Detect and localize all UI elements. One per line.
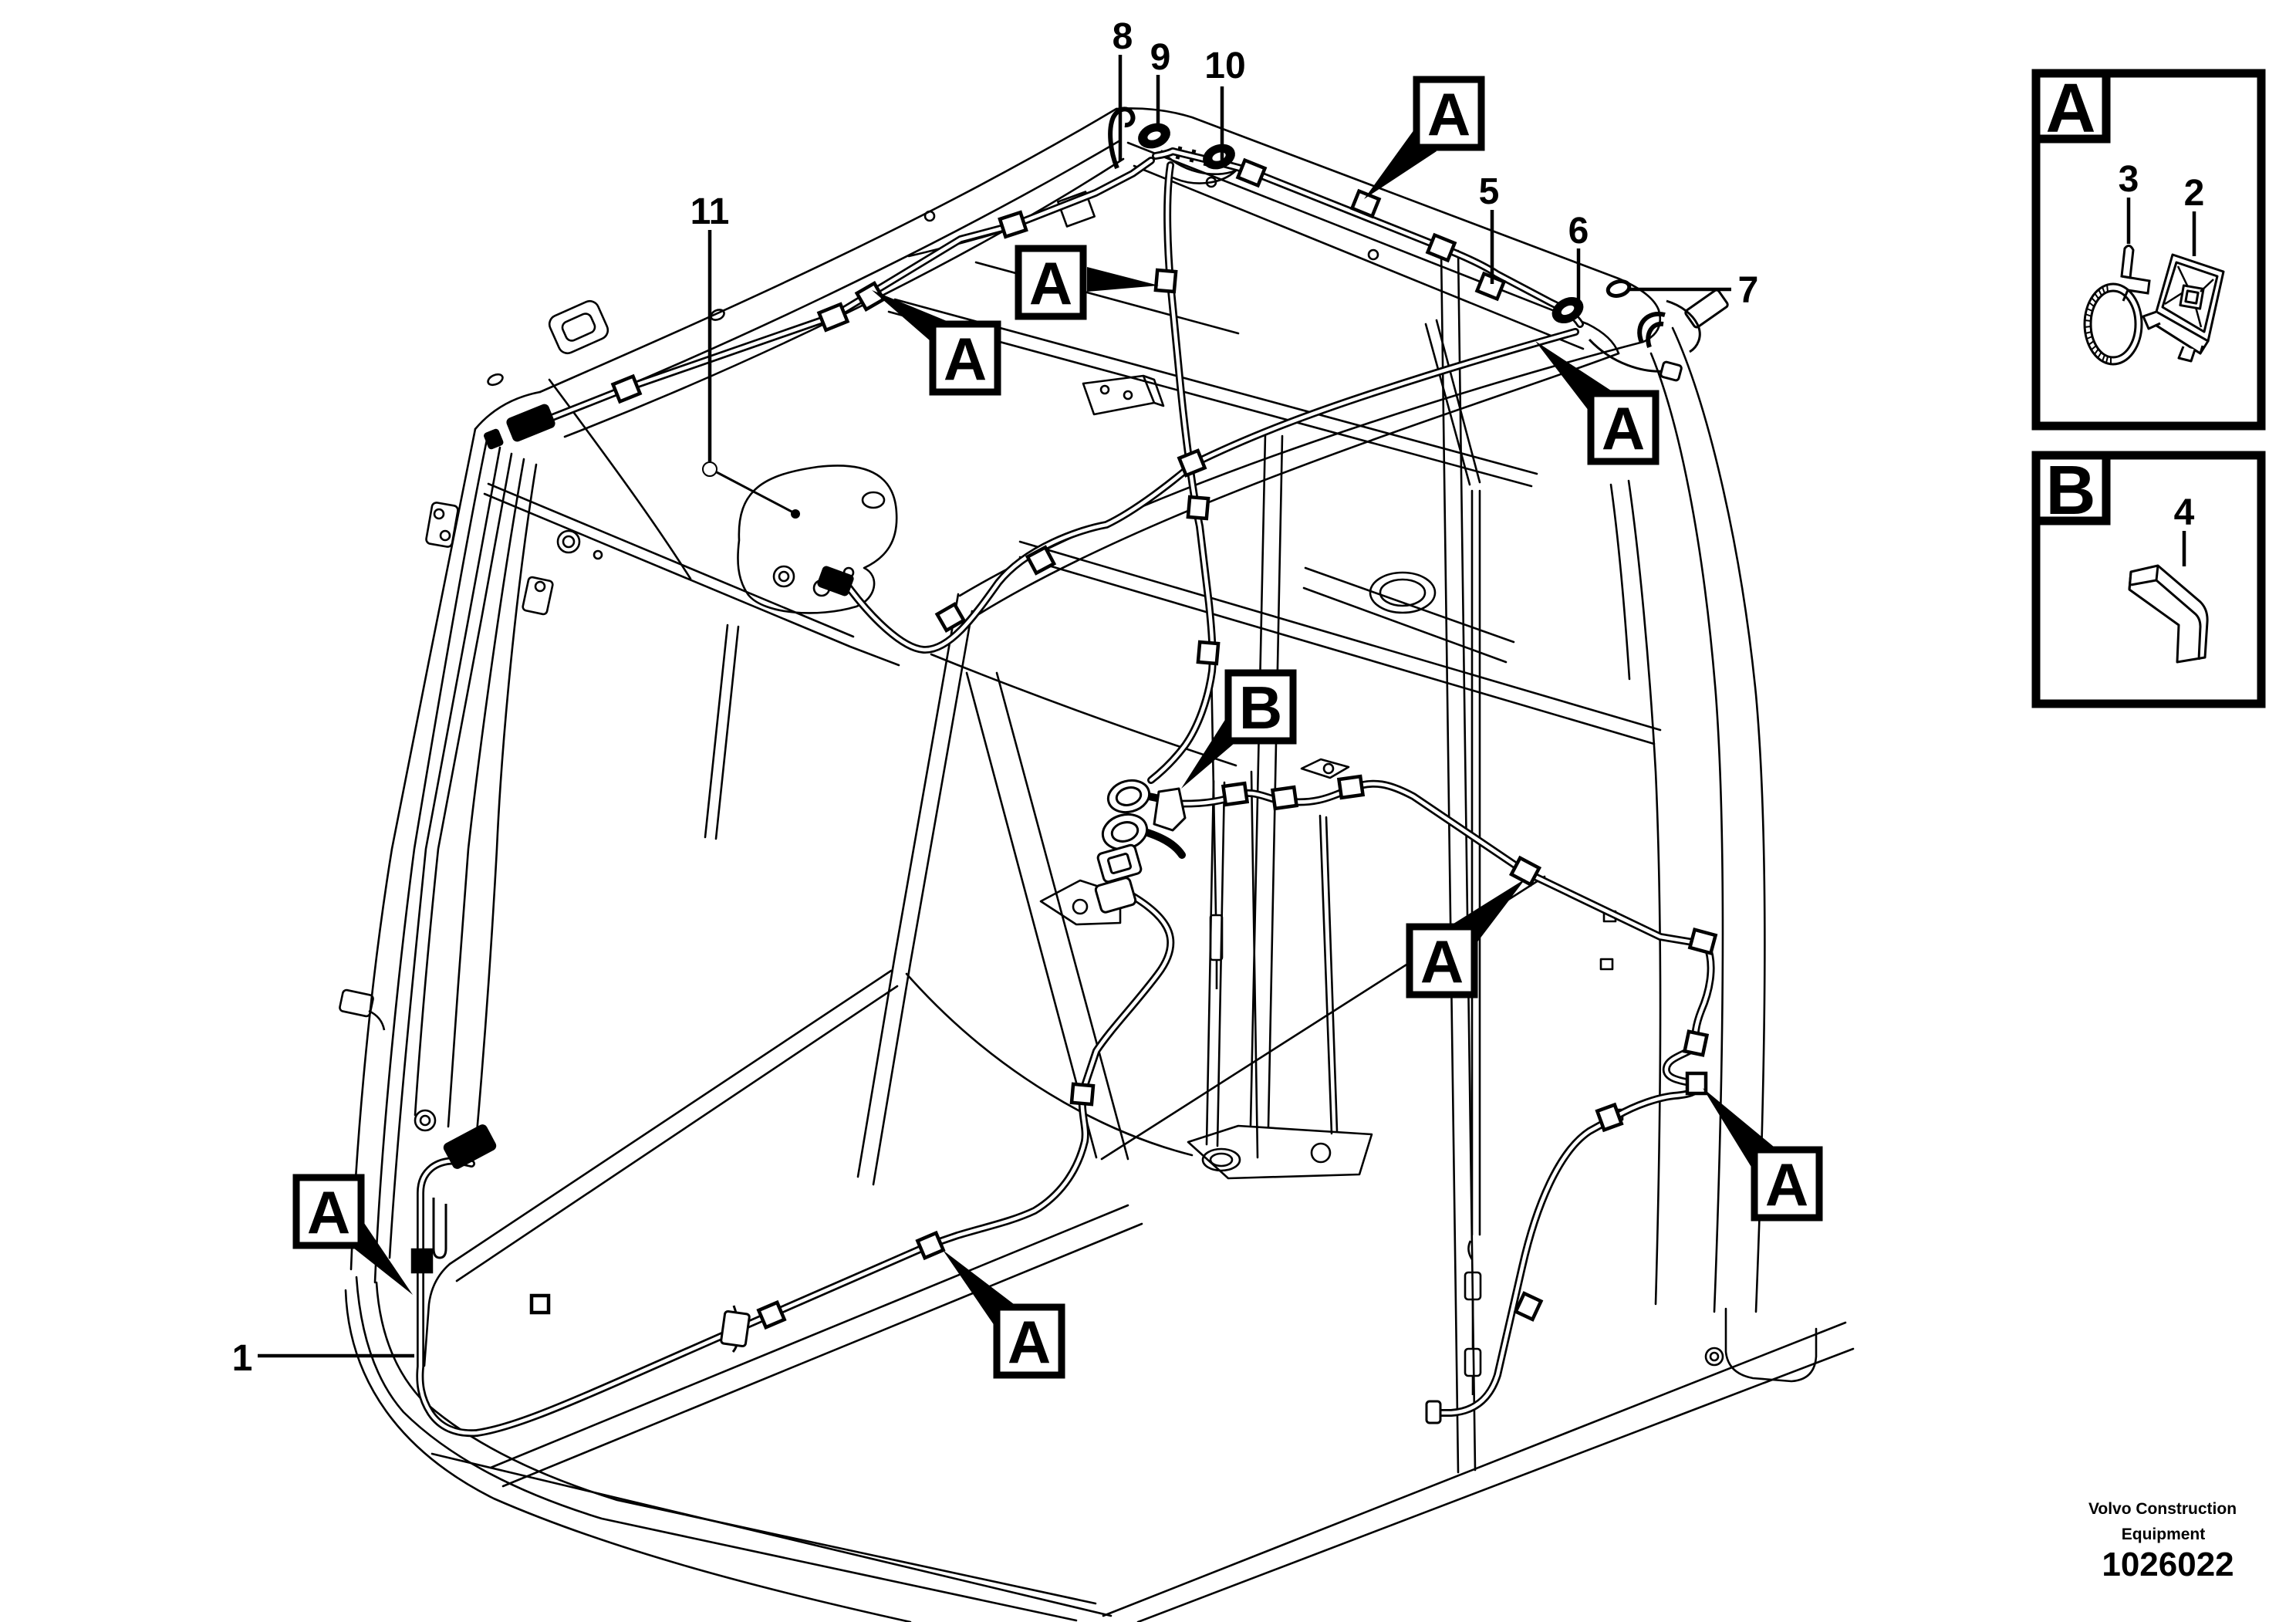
svg-text:1026022: 1026022 — [2102, 1546, 2234, 1583]
svg-text:A: A — [2046, 70, 2096, 147]
svg-text:11: 11 — [690, 191, 730, 232]
svg-text:3: 3 — [2119, 159, 2139, 200]
svg-text:A: A — [1008, 1308, 1051, 1376]
svg-text:5: 5 — [1479, 171, 1500, 212]
svg-text:Volvo Construction: Volvo Construction — [2088, 1500, 2237, 1518]
svg-text:A: A — [944, 325, 987, 393]
svg-text:A: A — [1765, 1151, 1808, 1218]
svg-text:A: A — [307, 1178, 350, 1246]
svg-text:A: A — [1029, 249, 1072, 317]
svg-text:A: A — [1602, 394, 1645, 462]
svg-text:2: 2 — [2184, 173, 2205, 214]
svg-text:B: B — [2046, 452, 2096, 529]
svg-text:B: B — [1239, 674, 1282, 742]
svg-text:1: 1 — [232, 1338, 253, 1379]
svg-text:A: A — [1427, 80, 1470, 148]
svg-text:7: 7 — [1738, 270, 1759, 311]
svg-text:10: 10 — [1204, 46, 1245, 86]
svg-text:A: A — [1420, 928, 1464, 995]
svg-text:4: 4 — [2174, 492, 2195, 533]
svg-text:6: 6 — [1568, 211, 1589, 252]
svg-text:Equipment: Equipment — [2122, 1526, 2206, 1543]
svg-text:9: 9 — [1150, 37, 1171, 78]
svg-text:8: 8 — [1113, 16, 1133, 57]
